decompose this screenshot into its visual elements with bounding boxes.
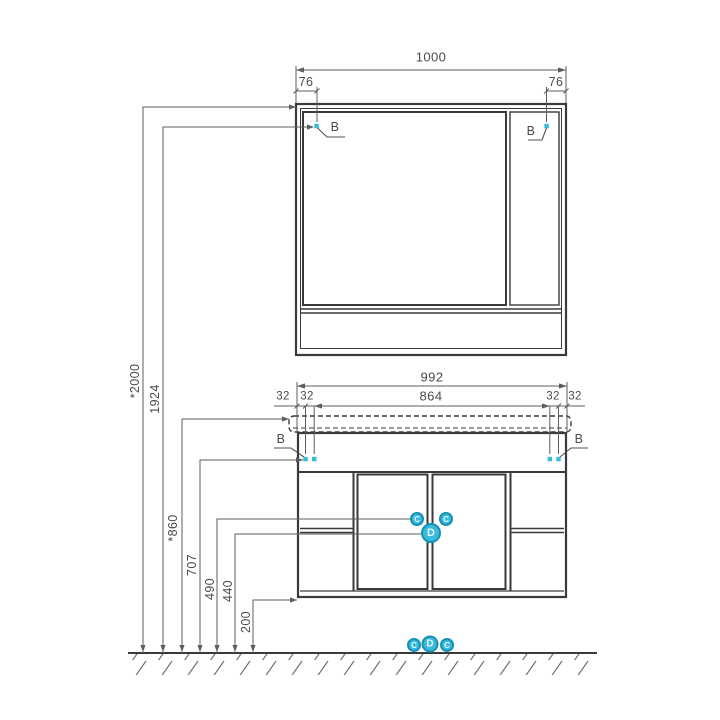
dim-label-vanity-width: 992 <box>421 371 444 384</box>
dim-label-offset-32-2: 32 <box>300 391 314 403</box>
vanity-mount-dot-left-1 <box>303 457 308 462</box>
height-label-floor-gap: 200 <box>240 611 253 633</box>
vanity-mount-dot-right-1 <box>548 457 553 462</box>
callout-b-mirror-left: B <box>331 121 340 134</box>
dim-label-mirror-width: 1000 <box>416 51 447 64</box>
height-label-vanity-mount: 707 <box>186 554 199 576</box>
dim-label-offset-32-3: 32 <box>546 391 560 403</box>
mount-point-dots <box>303 124 561 462</box>
callout-b-vanity-left: B <box>277 433 286 446</box>
floor-marker-c-right[interactable]: C <box>440 638 454 652</box>
dim-label-offset-32-1: 32 <box>276 391 290 403</box>
floor-marker-d[interactable]: D <box>422 636 439 653</box>
vanity-drawing <box>289 416 571 597</box>
mirror-panel <box>303 112 506 305</box>
height-label-total: *2000 <box>129 364 142 399</box>
dimension-drawing-canvas: 1000 76 76 B B 992 864 32 32 32 32 B B *… <box>0 0 720 720</box>
mirror-mount-dot-right <box>544 124 549 129</box>
dim-label-offset-32-4: 32 <box>568 391 582 403</box>
callout-b-mirror-right: B <box>527 125 536 138</box>
mirror-cabinet-drawing <box>296 104 566 355</box>
door-marker-d[interactable]: D <box>421 523 441 543</box>
dim-label-mount-width: 864 <box>420 390 443 403</box>
height-label-lower: 440 <box>222 580 235 602</box>
ground-line <box>128 653 597 675</box>
vanity-mount-dot-left-2 <box>312 457 317 462</box>
dim-label-offset-76-left: 76 <box>299 76 314 89</box>
drawing-linework <box>0 0 720 720</box>
floor-marker-c-left[interactable]: C <box>407 638 421 652</box>
mirror-door-panel <box>510 112 559 305</box>
vanity-door-left <box>358 475 428 590</box>
dimension-lines-vertical <box>140 104 421 653</box>
countertop-outline <box>289 416 571 432</box>
door-marker-c-left[interactable]: C <box>410 512 424 526</box>
vanity-door-right <box>433 475 506 590</box>
vanity-mount-dot-right-2 <box>556 457 561 462</box>
height-label-countertop: *860 <box>167 514 180 541</box>
ground-hatching <box>130 654 590 675</box>
height-label-mirror-mount: 1924 <box>149 384 162 413</box>
mirror-mount-dot-left <box>314 124 319 129</box>
dim-label-offset-76-right: 76 <box>549 76 564 89</box>
callout-b-vanity-right: B <box>575 433 584 446</box>
door-marker-c-right[interactable]: C <box>439 512 453 526</box>
height-label-upper: 490 <box>204 578 217 600</box>
